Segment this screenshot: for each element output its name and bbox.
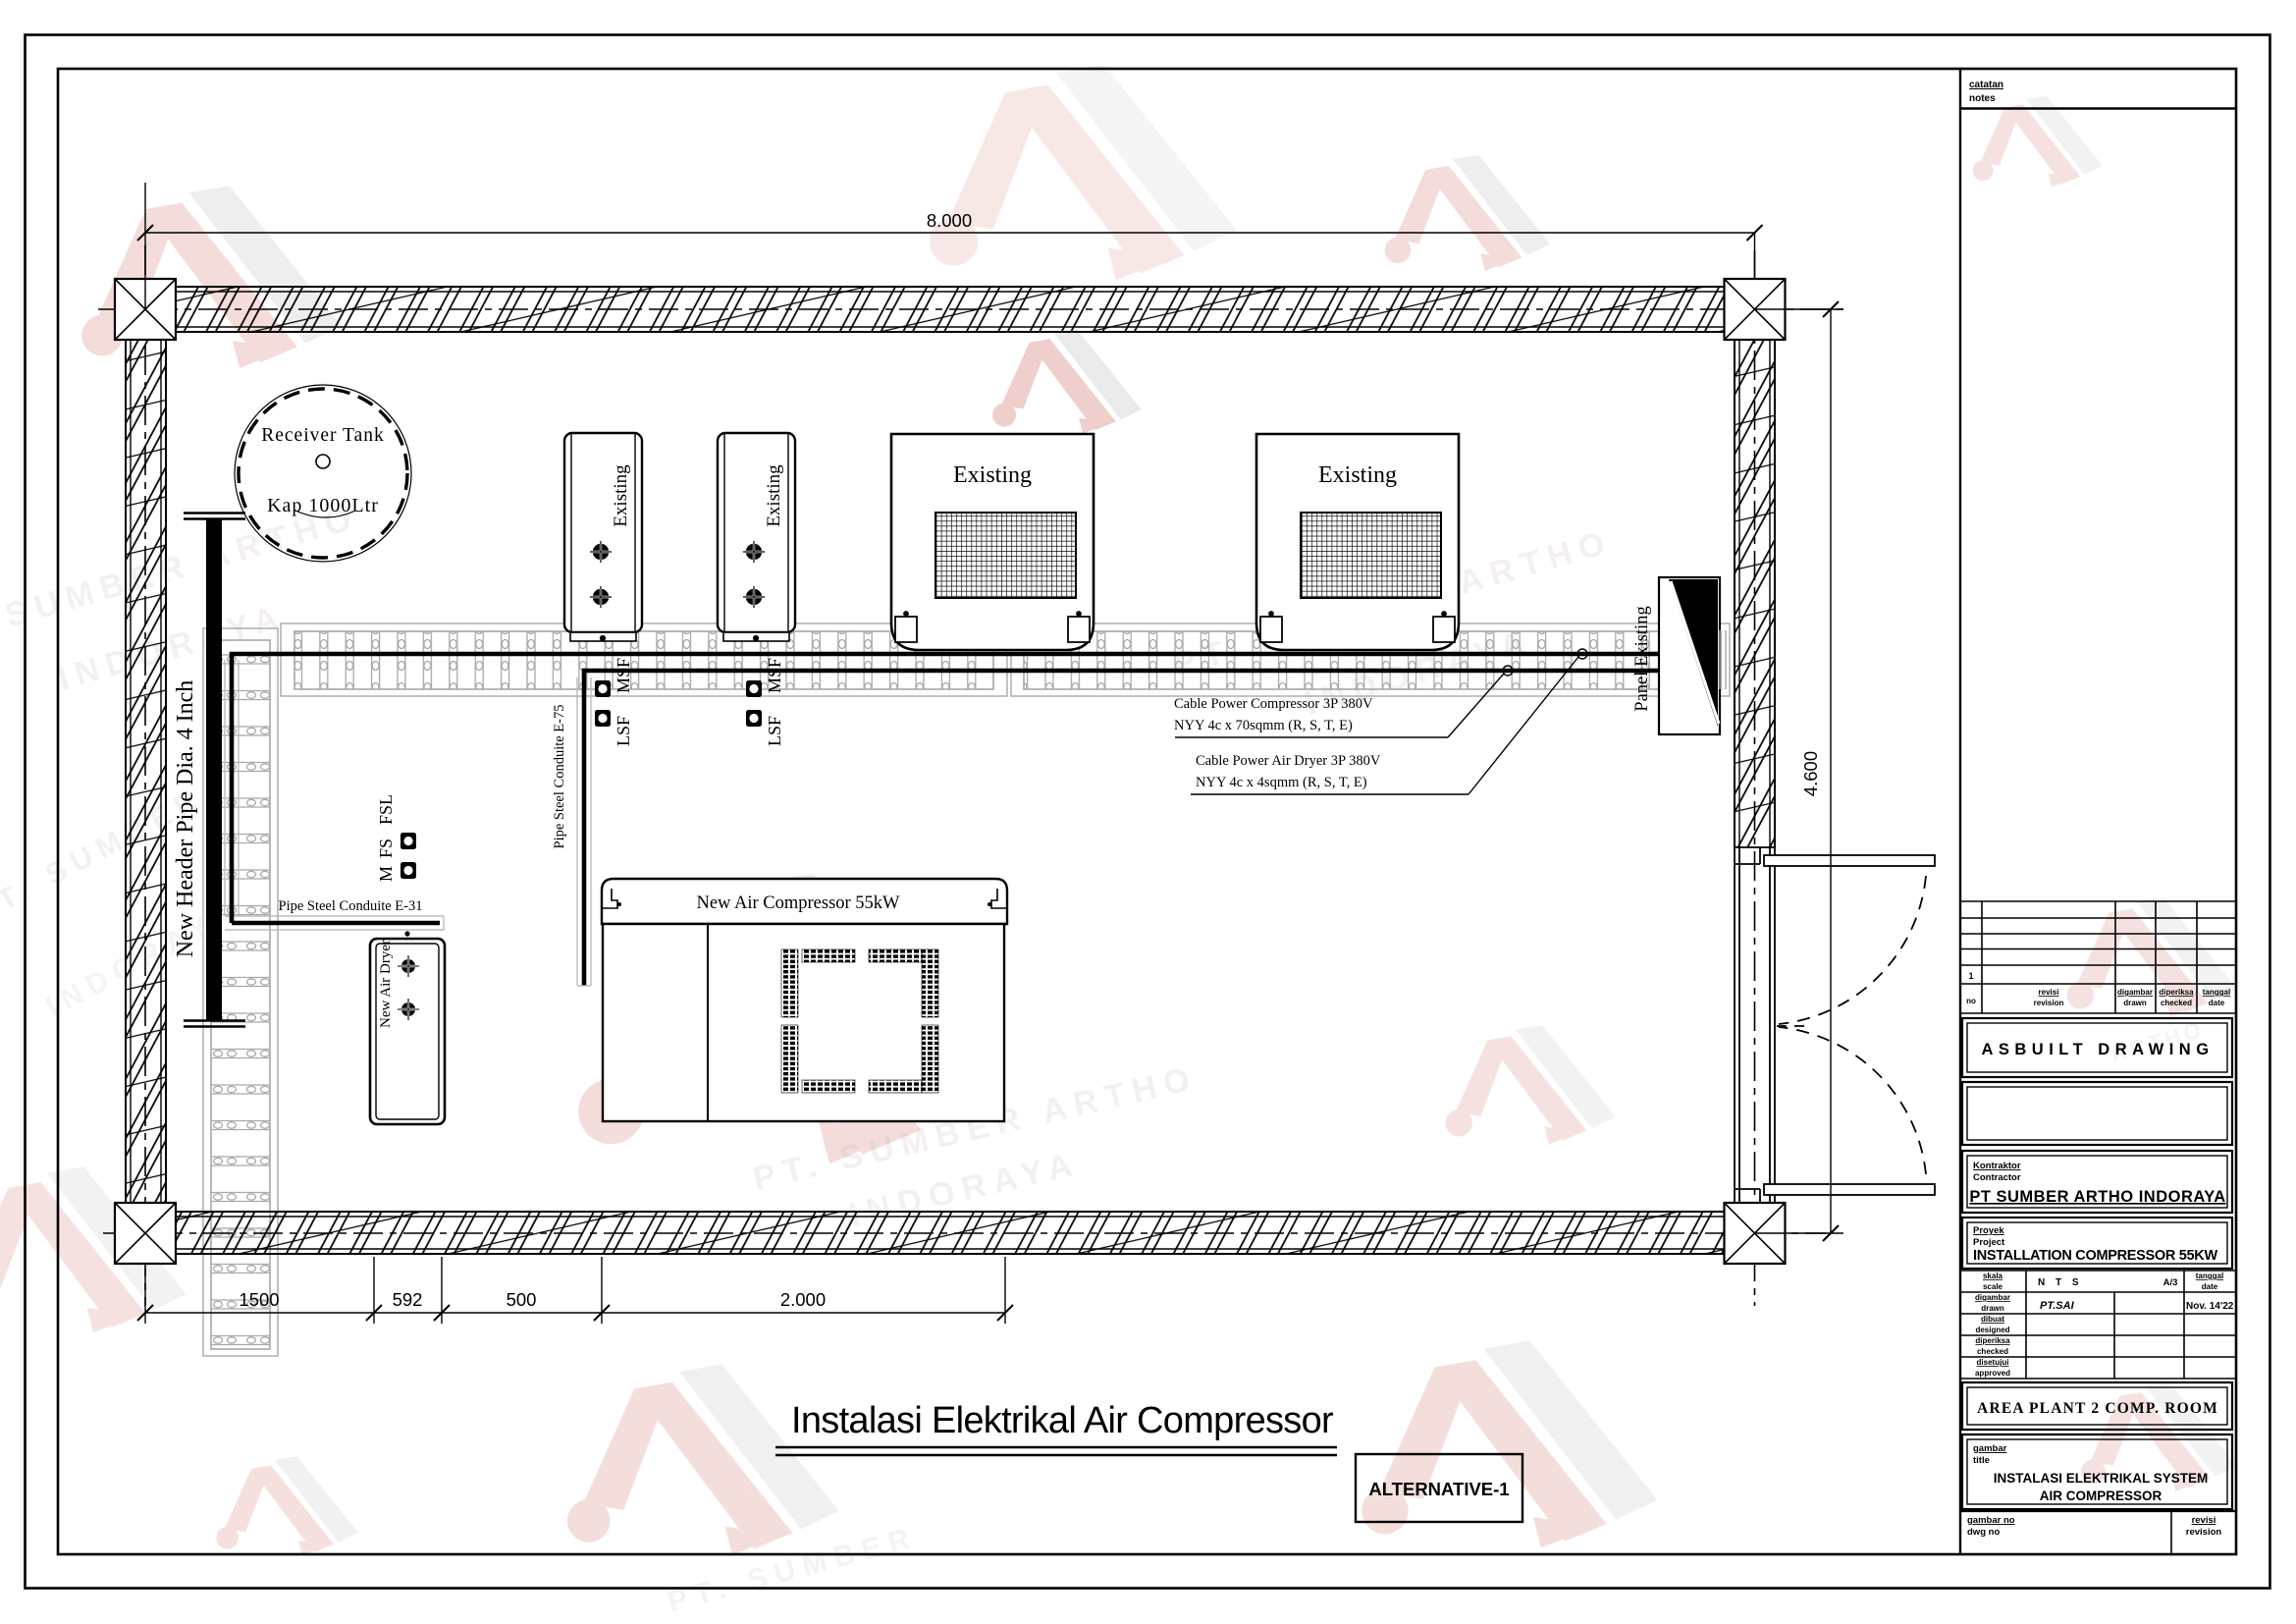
svg-text:NYY 4c x 70sqmm (R, S, T, E): NYY 4c x 70sqmm (R, S, T, E) bbox=[1174, 718, 1353, 733]
svg-text:Panel Existing: Panel Existing bbox=[1632, 606, 1652, 711]
svg-text:scale: scale bbox=[1983, 1282, 2003, 1291]
svg-text:Existing: Existing bbox=[764, 464, 784, 527]
svg-text:New Header Pipe Dia. 4 Inch: New Header Pipe Dia. 4 Inch bbox=[173, 680, 198, 958]
svg-text:ALTERNATIVE-1: ALTERNATIVE-1 bbox=[1368, 1479, 1509, 1499]
svg-text:A/3: A/3 bbox=[2163, 1277, 2178, 1288]
svg-text:MSF: MSF bbox=[614, 658, 633, 693]
svg-text:Receiver Tank: Receiver Tank bbox=[261, 425, 385, 446]
svg-text:digambar: digambar bbox=[1975, 1293, 2010, 1302]
svg-text:tanggal: tanggal bbox=[2196, 1272, 2223, 1280]
svg-text:diperiksa: diperiksa bbox=[1975, 1336, 2010, 1345]
svg-text:Kontraktor: Kontraktor bbox=[1973, 1161, 2021, 1171]
svg-text:Existing: Existing bbox=[611, 464, 631, 527]
svg-text:disetujui: disetujui bbox=[1977, 1358, 2009, 1367]
svg-text:Nov. 14'22: Nov. 14'22 bbox=[2186, 1301, 2234, 1312]
svg-text:LSF: LSF bbox=[614, 716, 633, 746]
svg-text:catatan: catatan bbox=[1969, 80, 2003, 90]
svg-text:drawn: drawn bbox=[1981, 1304, 2004, 1313]
svg-text:Kap 1000Ltr: Kap 1000Ltr bbox=[267, 495, 379, 516]
svg-text:ASBUILT DRAWING: ASBUILT DRAWING bbox=[1981, 1041, 2214, 1058]
svg-text:New Air Compressor 55kW: New Air Compressor 55kW bbox=[696, 893, 900, 913]
svg-text:Instalasi Elektrikal Air Compr: Instalasi Elektrikal Air Compressor bbox=[791, 1400, 1334, 1441]
svg-text:592: 592 bbox=[393, 1289, 423, 1310]
svg-text:gambar: gambar bbox=[1973, 1443, 2007, 1454]
svg-text:checked: checked bbox=[2161, 999, 2192, 1007]
svg-text:1500: 1500 bbox=[239, 1289, 279, 1310]
svg-text:4.600: 4.600 bbox=[1800, 751, 1821, 796]
svg-text:INSTALASI ELEKTRIKAL SYSTEM: INSTALASI ELEKTRIKAL SYSTEM bbox=[1994, 1471, 2209, 1486]
svg-text:1: 1 bbox=[1968, 971, 1973, 981]
svg-text:Cable Power Air Dryer 3P 380V: Cable Power Air Dryer 3P 380V bbox=[1196, 753, 1381, 769]
svg-text:title: title bbox=[1973, 1455, 1990, 1466]
svg-text:Existing: Existing bbox=[953, 462, 1032, 488]
svg-text:revision: revision bbox=[2034, 999, 2064, 1007]
svg-text:500: 500 bbox=[507, 1289, 537, 1310]
svg-text:LSF: LSF bbox=[765, 716, 784, 746]
svg-text:revisi: revisi bbox=[2192, 1515, 2216, 1526]
svg-text:designed: designed bbox=[1975, 1326, 2009, 1334]
svg-text:notes: notes bbox=[1969, 93, 1996, 104]
svg-text:Pipe Steel Conduite E-31: Pipe Steel Conduite E-31 bbox=[279, 898, 423, 914]
svg-text:2.000: 2.000 bbox=[780, 1289, 826, 1310]
svg-text:FSL: FSL bbox=[376, 794, 396, 825]
svg-text:Cable Power Compressor 3P 380V: Cable Power Compressor 3P 380V bbox=[1174, 696, 1373, 712]
svg-text:checked: checked bbox=[1977, 1347, 2008, 1356]
svg-text:digambar: digambar bbox=[2117, 988, 2153, 997]
svg-text:AIR COMPRESSOR: AIR COMPRESSOR bbox=[2040, 1489, 2163, 1503]
svg-text:drawn: drawn bbox=[2123, 999, 2147, 1007]
svg-text:FS: FS bbox=[376, 839, 396, 858]
svg-text:dibuat: dibuat bbox=[1981, 1315, 2004, 1324]
svg-text:MSF: MSF bbox=[765, 658, 784, 693]
svg-text:skala: skala bbox=[1983, 1272, 2003, 1280]
svg-text:M: M bbox=[376, 866, 396, 882]
svg-text:revisi: revisi bbox=[2039, 988, 2059, 997]
svg-text:Project: Project bbox=[1973, 1237, 2005, 1248]
svg-text:revision: revision bbox=[2186, 1527, 2222, 1538]
svg-text:no: no bbox=[1966, 997, 1976, 1005]
svg-text:date: date bbox=[2202, 1282, 2218, 1291]
svg-text:AREA PLANT 2 COMP. ROOM: AREA PLANT 2 COMP. ROOM bbox=[1977, 1400, 2218, 1417]
svg-text:approved: approved bbox=[1975, 1369, 2010, 1378]
svg-text:Contractor: Contractor bbox=[1973, 1172, 2021, 1183]
svg-text:Existing: Existing bbox=[1318, 462, 1397, 488]
svg-text:Proyek: Proyek bbox=[1973, 1225, 2004, 1236]
svg-text:INSTALLATION COMPRESSOR 55KW: INSTALLATION COMPRESSOR 55KW bbox=[1973, 1248, 2217, 1264]
svg-text:NYY 4c x 4sqmm (R, S, T, E): NYY 4c x 4sqmm (R, S, T, E) bbox=[1196, 775, 1367, 790]
svg-text:tanggal: tanggal bbox=[2203, 988, 2230, 997]
svg-text:gambar no: gambar no bbox=[1967, 1515, 2015, 1526]
svg-text:PT SUMBER ARTHO INDORAYA: PT SUMBER ARTHO INDORAYA bbox=[1969, 1188, 2225, 1206]
svg-text:dwg no: dwg no bbox=[1967, 1527, 2000, 1538]
svg-text:8.000: 8.000 bbox=[927, 210, 972, 231]
svg-text:N T S: N T S bbox=[2038, 1277, 2083, 1288]
svg-text:Pipe Steel Conduite E-75: Pipe Steel Conduite E-75 bbox=[552, 705, 567, 849]
svg-text:PT.SAI: PT.SAI bbox=[2040, 1300, 2075, 1312]
svg-text:New Air Dryer: New Air Dryer bbox=[378, 940, 394, 1028]
svg-text:date: date bbox=[2209, 999, 2225, 1007]
svg-text:diperiksa: diperiksa bbox=[2159, 988, 2194, 997]
